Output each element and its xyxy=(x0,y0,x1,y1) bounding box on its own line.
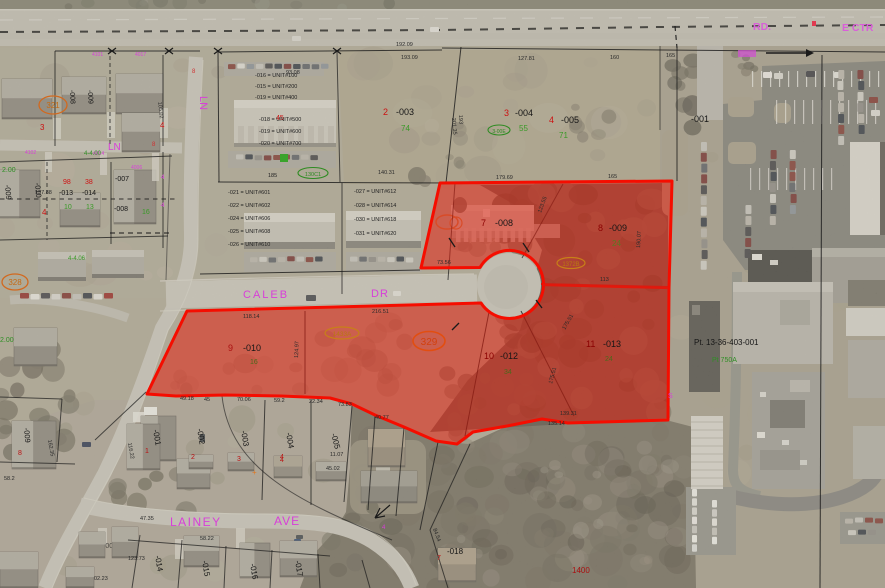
svg-text:-014: -014 xyxy=(82,190,96,197)
svg-text:-026 = UNIT#610: -026 = UNIT#610 xyxy=(228,242,270,248)
svg-text:2: 2 xyxy=(383,107,388,117)
svg-text:-008: -008 xyxy=(68,90,76,104)
svg-text:10: 10 xyxy=(484,351,494,361)
svg-text:190.07: 190.07 xyxy=(636,231,643,248)
svg-text:4: 4 xyxy=(160,121,165,130)
svg-text:-018 = UNIT#500: -018 = UNIT#500 xyxy=(259,117,301,123)
svg-text:-024 = UNIT#606: -024 = UNIT#606 xyxy=(228,216,270,222)
svg-text:321: 321 xyxy=(46,101,60,110)
svg-text:193: 193 xyxy=(457,115,463,124)
svg-text:-010: -010 xyxy=(243,343,261,353)
svg-text:LN: LN xyxy=(197,96,209,110)
svg-text:4-4.00: 4-4.00 xyxy=(84,151,102,157)
svg-text:2.00: 2.00 xyxy=(0,337,14,344)
svg-text:140.31: 140.31 xyxy=(378,170,395,176)
svg-text:4-4.06: 4-4.06 xyxy=(68,256,86,262)
svg-text:-025 = UNIT#608: -025 = UNIT#608 xyxy=(228,229,270,235)
svg-text:4006: 4006 xyxy=(131,165,142,171)
svg-text:135.14: 135.14 xyxy=(548,421,565,427)
svg-text:+: + xyxy=(252,468,257,477)
svg-text:16: 16 xyxy=(142,209,150,216)
svg-text:4: 4 xyxy=(280,457,284,464)
svg-text:130C1: 130C1 xyxy=(305,172,321,178)
svg-text:7: 7 xyxy=(437,555,441,562)
svg-text:8: 8 xyxy=(18,450,22,457)
svg-text:-019 = UNIT#600: -019 = UNIT#600 xyxy=(259,129,301,135)
svg-text:139.31: 139.31 xyxy=(560,411,577,417)
svg-text:-019 = UNIT#400: -019 = UNIT#400 xyxy=(255,95,297,101)
svg-text:73.83: 73.83 xyxy=(338,402,352,408)
svg-text:98: 98 xyxy=(63,179,71,186)
svg-text:216.51: 216.51 xyxy=(372,309,389,315)
svg-text:38: 38 xyxy=(85,179,93,186)
svg-text:165: 165 xyxy=(666,53,675,59)
svg-text:47.35: 47.35 xyxy=(140,516,154,522)
svg-text:LAINEY: LAINEY xyxy=(170,515,222,529)
svg-text:127.81: 127.81 xyxy=(518,56,535,62)
svg-text:2.00: 2.00 xyxy=(2,167,16,174)
svg-text:11.07: 11.07 xyxy=(330,452,343,458)
svg-text:E CTR: E CTR xyxy=(842,22,874,34)
svg-text:74: 74 xyxy=(401,124,410,133)
svg-text:-009: -009 xyxy=(22,427,32,443)
svg-text:45.02: 45.02 xyxy=(326,466,340,472)
svg-text:10: 10 xyxy=(64,204,72,211)
svg-text:-013: -013 xyxy=(603,339,621,349)
svg-text:-004: -004 xyxy=(515,108,533,118)
svg-text:-003: -003 xyxy=(396,107,414,117)
svg-text:24: 24 xyxy=(605,356,613,363)
svg-text:-001: -001 xyxy=(691,114,709,124)
svg-text:LN: LN xyxy=(108,142,121,153)
svg-text:193.09: 193.09 xyxy=(401,55,418,61)
svg-text:45: 45 xyxy=(204,397,210,403)
svg-text:-031 = UNIT#620: -031 = UNIT#620 xyxy=(354,231,396,237)
svg-text:124.97: 124.97 xyxy=(294,341,301,358)
svg-text:8: 8 xyxy=(598,223,603,233)
svg-text:-021 = UNIT#601: -021 = UNIT#601 xyxy=(228,190,270,196)
svg-text:-008: -008 xyxy=(114,206,128,213)
svg-text:9: 9 xyxy=(228,343,233,353)
svg-text:-030 = UNIT#618: -030 = UNIT#618 xyxy=(354,217,396,223)
svg-text:192.09: 192.09 xyxy=(396,42,413,48)
svg-text:4017: 4017 xyxy=(135,52,146,58)
svg-text:-013: -013 xyxy=(59,190,73,197)
svg-text:137.88: 137.88 xyxy=(35,190,52,196)
svg-text:7: 7 xyxy=(481,218,486,228)
svg-text:93.08: 93.08 xyxy=(286,70,300,76)
svg-text:179.69: 179.69 xyxy=(496,175,513,181)
svg-text:40.77: 40.77 xyxy=(375,415,389,421)
svg-text:328: 328 xyxy=(8,278,22,287)
svg-text:16: 16 xyxy=(250,359,258,366)
svg-text:-008: -008 xyxy=(495,218,513,228)
svg-text:160: 160 xyxy=(610,55,619,61)
svg-text:Pt. 13-36-403-001: Pt. 13-36-403-001 xyxy=(694,338,759,347)
svg-text:1400: 1400 xyxy=(572,566,590,575)
svg-text:AVE: AVE xyxy=(274,514,300,528)
svg-text:-009: -009 xyxy=(3,184,13,200)
svg-text:-022 = UNIT#602: -022 = UNIT#602 xyxy=(228,203,270,209)
svg-text:49.18: 49.18 xyxy=(180,396,194,402)
svg-text:4102: 4102 xyxy=(25,150,36,156)
svg-text:-018: -018 xyxy=(447,547,464,556)
svg-text:2: 2 xyxy=(191,454,195,461)
svg-text:1433A: 1433A xyxy=(333,331,352,338)
svg-text:123.73: 123.73 xyxy=(128,556,145,562)
svg-text:-028 = UNIT#614: -028 = UNIT#614 xyxy=(354,203,396,209)
svg-text:3: 3 xyxy=(237,456,241,463)
svg-text:165: 165 xyxy=(608,174,617,180)
svg-text:11: 11 xyxy=(586,339,595,349)
svg-text:73.56: 73.56 xyxy=(437,260,451,266)
svg-text:22.34: 22.34 xyxy=(309,399,323,405)
svg-text:4: 4 xyxy=(549,115,554,125)
svg-text:55: 55 xyxy=(519,124,528,133)
svg-text:3: 3 xyxy=(40,123,45,132)
svg-text:S: S xyxy=(668,393,673,400)
svg-text:3-00E: 3-00E xyxy=(492,129,506,135)
svg-text:DR: DR xyxy=(371,288,389,300)
svg-text:329: 329 xyxy=(421,337,438,348)
svg-text:-009: -009 xyxy=(86,90,94,104)
svg-text:70.06: 70.06 xyxy=(237,397,251,403)
svg-text:CALEB: CALEB xyxy=(243,289,289,301)
svg-text:71: 71 xyxy=(559,131,568,140)
svg-text:4101: 4101 xyxy=(92,52,103,58)
svg-text:-012: -012 xyxy=(500,351,518,361)
svg-text:59.2: 59.2 xyxy=(274,398,285,404)
svg-text:-009: -009 xyxy=(609,223,627,233)
svg-text:58.22: 58.22 xyxy=(200,536,214,542)
svg-text:1: 1 xyxy=(145,448,149,455)
svg-text:-007: -007 xyxy=(115,176,129,183)
svg-text:-015 = UNIT#200: -015 = UNIT#200 xyxy=(255,84,297,90)
svg-text:118.14: 118.14 xyxy=(243,314,259,320)
svg-text:-027 = UNIT#612: -027 = UNIT#612 xyxy=(354,189,396,195)
svg-text:113: 113 xyxy=(600,277,609,283)
svg-text:3: 3 xyxy=(504,108,509,118)
svg-text:Pt 750A: Pt 750A xyxy=(712,357,737,364)
svg-text:24: 24 xyxy=(612,239,621,248)
svg-text:4: 4 xyxy=(42,208,47,217)
svg-text:1372B: 1372B xyxy=(562,262,579,268)
svg-text:-020 = UNIT#700: -020 = UNIT#700 xyxy=(259,141,301,147)
svg-text:58.2: 58.2 xyxy=(4,476,15,482)
svg-text:13: 13 xyxy=(86,204,94,211)
svg-text:02.23: 02.23 xyxy=(94,576,108,582)
svg-text:185: 185 xyxy=(268,173,277,179)
svg-text:34: 34 xyxy=(504,369,512,376)
svg-text:-005: -005 xyxy=(561,115,579,125)
svg-text:RD.: RD. xyxy=(753,21,771,33)
